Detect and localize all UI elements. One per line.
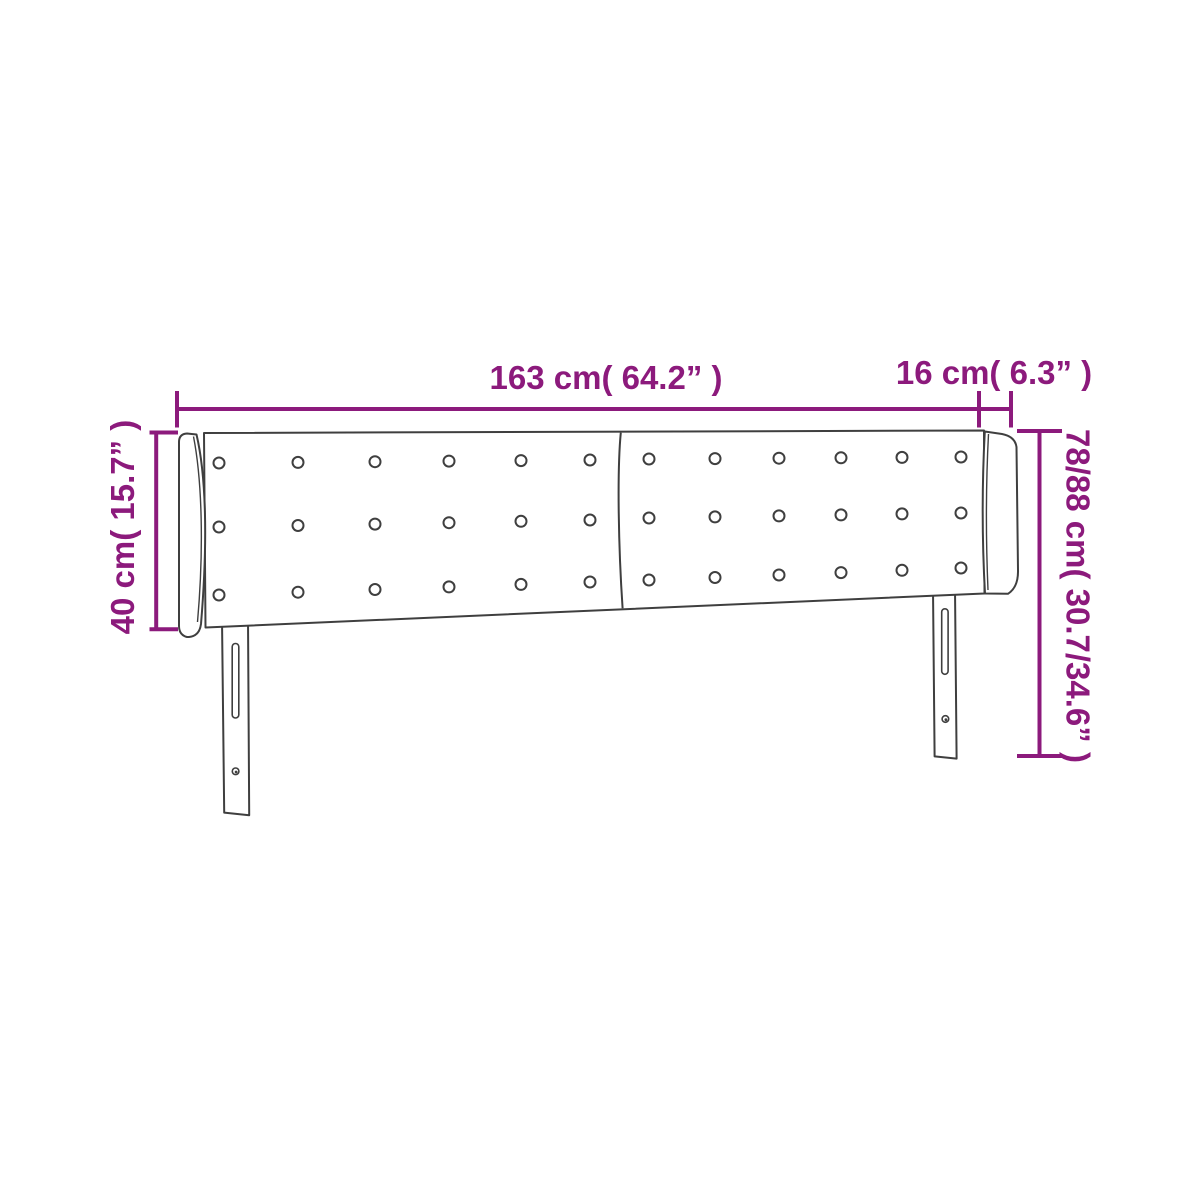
upholstery-button: [516, 455, 527, 466]
upholstery-button: [444, 581, 455, 592]
upholstery-button: [293, 457, 304, 468]
upholstery-button: [956, 452, 967, 463]
total-height-dimension: [1017, 431, 1062, 756]
upholstery-button: [774, 453, 785, 464]
upholstery-button: [293, 587, 304, 598]
upholstery-button: [710, 572, 721, 583]
upholstery-button: [774, 510, 785, 521]
right-leg-slot: [942, 609, 948, 675]
left-wing: [179, 434, 205, 638]
upholstery-button: [370, 584, 381, 595]
upholstery-button: [774, 570, 785, 581]
upholstery-button: [214, 590, 225, 601]
left-leg-screw-dot: [235, 771, 238, 774]
dimension-diagram: 163 cm( 64.2” ) 16 cm( 6.3” ) 40 cm( 15.…: [0, 0, 1200, 1200]
upholstery-button: [293, 520, 304, 531]
upholstery-button: [710, 511, 721, 522]
width-dimension-label: 163 cm( 64.2” ): [490, 359, 723, 396]
upholstery-button: [214, 522, 225, 533]
upholstery-button: [516, 579, 527, 590]
upholstery-button: [444, 456, 455, 467]
total-height-dimension-label: 78/88 cm( 30.7/34.6” ): [1060, 429, 1097, 763]
upholstery-button: [444, 517, 455, 528]
upholstery-button: [370, 456, 381, 467]
upholstery-button: [836, 567, 847, 578]
upholstery-button: [516, 516, 527, 527]
upholstery-button: [644, 513, 655, 524]
upholstery-button: [836, 509, 847, 520]
upholstery-button: [644, 575, 655, 586]
upholstery-button: [710, 453, 721, 464]
left-leg: [222, 619, 249, 816]
headboard-height-dimension: [150, 433, 179, 630]
right-wing: [983, 432, 1018, 594]
upholstery-button: [956, 563, 967, 574]
upholstery-button: [897, 452, 908, 463]
width-dimension: [177, 391, 1011, 428]
upholstery-button: [585, 455, 596, 466]
headboard-height-dimension-label: 40 cm( 15.7” ): [104, 420, 141, 635]
upholstery-button: [897, 565, 908, 576]
left-leg-slot: [232, 644, 239, 719]
upholstery-button: [370, 519, 381, 530]
upholstery-button: [897, 508, 908, 519]
upholstery-button: [214, 458, 225, 469]
right-leg-screw-dot: [945, 718, 948, 721]
upholstery-button: [585, 577, 596, 588]
upholstery-button: [644, 454, 655, 465]
upholstery-button: [836, 452, 847, 463]
ear-depth-dimension-label: 16 cm( 6.3” ): [896, 354, 1092, 391]
headboard-diagram-svg: 163 cm( 64.2” ) 16 cm( 6.3” ) 40 cm( 15.…: [0, 0, 1200, 1200]
upholstery-button: [585, 515, 596, 526]
upholstery-button: [956, 508, 967, 519]
right-leg: [933, 589, 957, 759]
